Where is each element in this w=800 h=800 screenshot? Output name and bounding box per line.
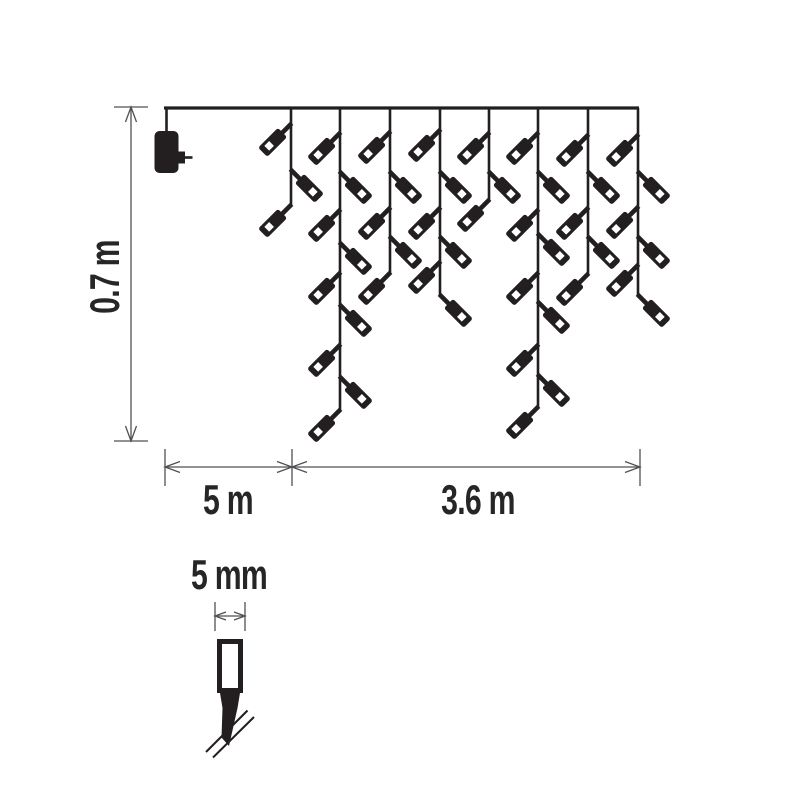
icicle-lights-dimension-diagram: 0.7 m 5 m 3.6 m 5 mm [0, 0, 800, 800]
detail-bulb-body [220, 642, 241, 691]
icicle-strand [456, 108, 522, 233]
lit-length-dimension-label: 3.6 m [441, 476, 515, 523]
adapter-body [155, 131, 179, 173]
icicle-strand [555, 108, 621, 307]
light-chain [155, 108, 671, 443]
led-bulb [555, 269, 593, 307]
led-bulb [505, 402, 543, 440]
lead-length-dimension-label: 5 m [203, 476, 253, 523]
bulb-diameter-label: 5 mm [191, 551, 267, 598]
led-bulb [435, 290, 473, 328]
led-bulb [633, 290, 671, 328]
diagram-canvas: 0.7 m 5 m 3.6 m 5 mm [0, 0, 800, 800]
icicle-strand [605, 108, 671, 328]
icicle-strand [258, 108, 324, 238]
bulb-detail-drawing [206, 602, 254, 758]
led-bulb [307, 405, 345, 443]
height-dimension-label: 0.7 m [81, 240, 128, 314]
led-bulb [258, 200, 296, 238]
power-adapter [155, 108, 193, 173]
detail-bulb-socket [220, 693, 240, 708]
bulb-size-detail [206, 602, 254, 758]
adapter-prong [177, 152, 185, 164]
icicle-strand [357, 108, 423, 306]
